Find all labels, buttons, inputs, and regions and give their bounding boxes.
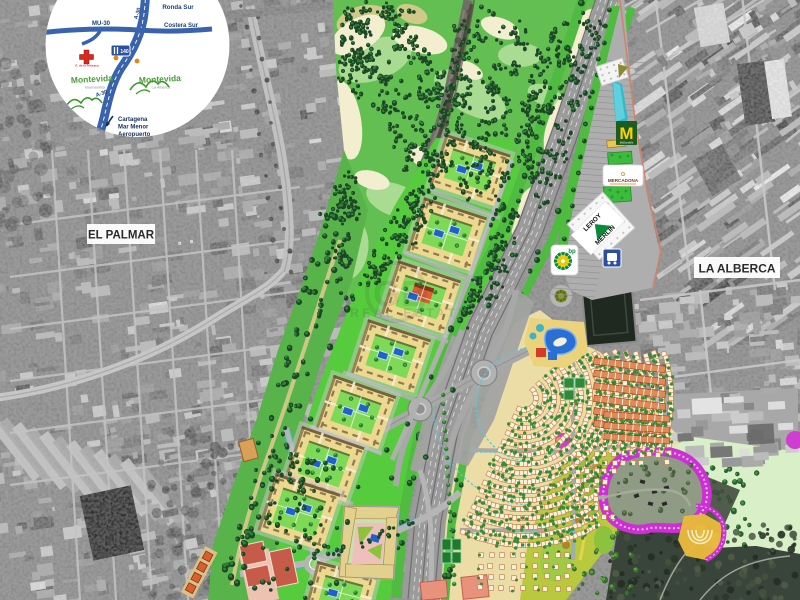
svg-text:MU-30: MU-30 [92,21,111,27]
svg-text:LA ALBERCA: LA ALBERCA [698,262,775,276]
svg-text:Costera Sur: Costera Sur [164,23,199,29]
svg-text:REAL ESTATE: REAL ESTATE [350,306,470,320]
svg-text:E. de la Arrixaca: E. de la Arrixaca [75,64,99,68]
svg-text:140: 140 [120,49,129,55]
svg-text:MERCADONA: MERCADONA [608,178,639,183]
svg-text:EL PALMAR: EL PALMAR [88,230,155,242]
svg-text:McDonald's: McDonald's [620,141,634,145]
svg-text:M: M [619,124,633,143]
svg-text:Ronda Sur: Ronda Sur [162,4,194,11]
svg-text:Buenavista: Buenavista [85,85,106,90]
svg-text:✿: ✿ [620,171,625,178]
svg-text:Cartagena: Cartagena [118,117,148,123]
svg-text:Mar Menor: Mar Menor [118,125,149,131]
svg-text:bp: bp [568,249,576,255]
